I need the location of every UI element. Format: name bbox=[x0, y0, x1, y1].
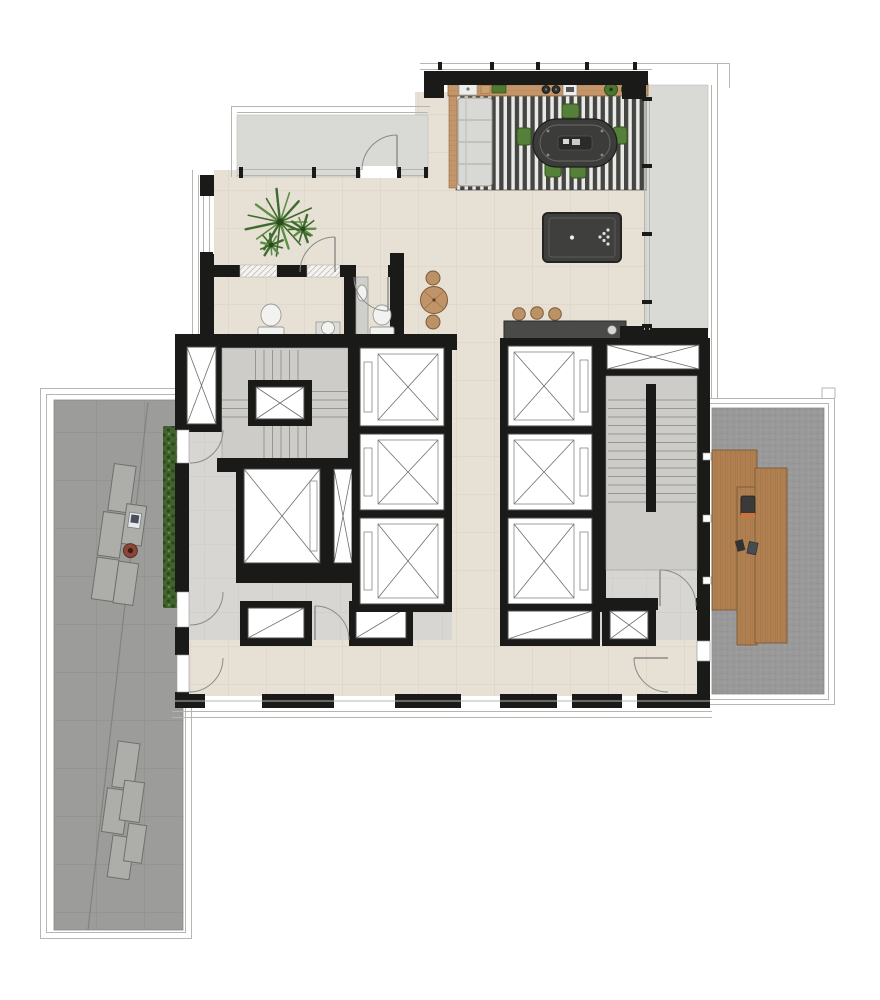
cue-ball bbox=[570, 235, 574, 239]
palm-center bbox=[276, 218, 283, 225]
lobby-entry-threshold bbox=[457, 336, 503, 351]
stool bbox=[426, 315, 440, 329]
elevator-car bbox=[508, 346, 592, 426]
floor-plan-canvas bbox=[0, 0, 880, 1000]
wall-window bbox=[703, 515, 711, 522]
palm-center bbox=[269, 243, 274, 248]
elevator-door-slot bbox=[364, 362, 372, 412]
palm-center bbox=[301, 227, 306, 232]
elevator-door-slot bbox=[580, 532, 588, 590]
corridor-door-opening bbox=[177, 655, 189, 692]
planter-box bbox=[492, 85, 506, 93]
green-chair bbox=[562, 104, 579, 118]
stair-west bbox=[222, 348, 348, 460]
laptop-screen bbox=[130, 514, 139, 523]
terrace-door-opening bbox=[697, 641, 710, 661]
elevator-door-slot bbox=[364, 532, 372, 590]
stool bbox=[549, 308, 562, 321]
window-band-left bbox=[200, 193, 213, 255]
elevator-car bbox=[508, 518, 592, 604]
stool bbox=[513, 308, 526, 321]
stool bbox=[426, 271, 440, 285]
vanity-counter bbox=[356, 277, 368, 337]
balcony-right bbox=[646, 85, 708, 332]
terrace-door-opening bbox=[177, 430, 189, 463]
corridor-floor bbox=[189, 640, 697, 696]
terrace-right bbox=[701, 388, 836, 705]
cutting-board bbox=[481, 86, 490, 94]
wall-window bbox=[703, 577, 711, 584]
wall-window bbox=[703, 453, 711, 460]
sofa bbox=[458, 98, 492, 186]
stool bbox=[531, 307, 544, 320]
elevator-bank-east bbox=[500, 338, 600, 612]
elevator-door-slot bbox=[310, 481, 317, 551]
counter-sink bbox=[608, 326, 617, 335]
green-chair bbox=[517, 128, 531, 145]
elevator-car bbox=[360, 518, 444, 604]
elevator-middle bbox=[236, 461, 362, 573]
elevator-car bbox=[360, 348, 444, 426]
elevator-lobby-floor bbox=[452, 350, 502, 642]
billiard-table bbox=[543, 213, 621, 262]
floor-plan bbox=[0, 0, 880, 1000]
sofa-console bbox=[449, 96, 457, 188]
elevator-bank-west bbox=[352, 340, 452, 612]
elevator-door-slot bbox=[580, 360, 588, 412]
elevator-door-slot bbox=[580, 448, 588, 496]
balcony-door-opening bbox=[361, 166, 397, 178]
terrace-door-opening bbox=[177, 592, 189, 627]
elevator-door-slot bbox=[364, 448, 372, 496]
deck-chair-cushion bbox=[741, 513, 755, 518]
terrace-left bbox=[41, 389, 192, 939]
threshold bbox=[240, 265, 277, 277]
elevator-car bbox=[508, 434, 592, 510]
elevator-car bbox=[360, 434, 444, 510]
sink bbox=[316, 322, 340, 337]
